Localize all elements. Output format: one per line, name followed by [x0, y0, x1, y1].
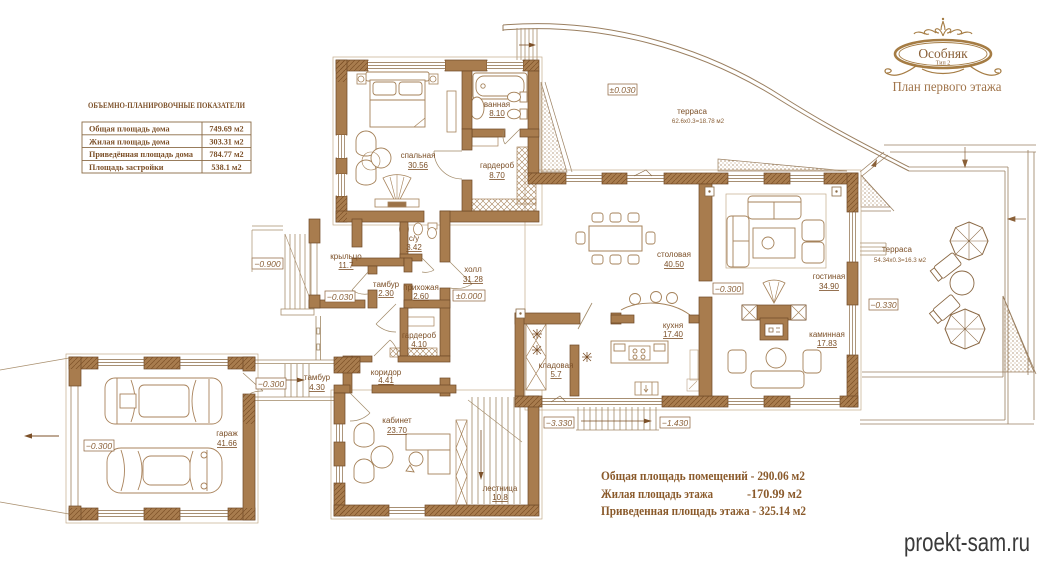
svg-text:4.10: 4.10 — [411, 340, 427, 349]
svg-text:лестница: лестница — [483, 484, 518, 493]
svg-text:784.77 м2: 784.77 м2 — [209, 150, 243, 159]
svg-text:тамбур: тамбур — [373, 280, 400, 289]
svg-text:−0.330: −0.330 — [870, 300, 897, 310]
svg-text:Приведенная площадь этажа - 32: Приведенная площадь этажа - 325.14 м2 — [601, 504, 806, 518]
svg-text:303.31 м2: 303.31 м2 — [209, 137, 243, 146]
svg-text:3.42: 3.42 — [406, 243, 422, 252]
svg-text:с/у: с/у — [409, 234, 419, 243]
svg-text:ванная: ванная — [484, 100, 510, 109]
svg-text:гостиная: гостиная — [813, 272, 846, 281]
svg-text:30.56: 30.56 — [408, 161, 429, 170]
svg-text:31.28: 31.28 — [463, 275, 484, 284]
svg-text:гардероб: гардероб — [480, 161, 514, 170]
svg-text:40.50: 40.50 — [664, 260, 685, 269]
svg-text:11.7: 11.7 — [339, 261, 355, 270]
svg-text:62.6х0.3=18.78 м2: 62.6х0.3=18.78 м2 — [672, 118, 725, 125]
svg-text:каминная: каминная — [809, 330, 845, 339]
svg-text:17.40: 17.40 — [663, 330, 684, 339]
svg-text:План первого этажа: План первого этажа — [893, 79, 1002, 94]
svg-text:Тип 2: Тип 2 — [936, 61, 950, 67]
svg-text:Общая площадь дома: Общая площадь дома — [89, 125, 170, 134]
svg-text:2.60: 2.60 — [413, 292, 429, 301]
svg-text:холл: холл — [464, 265, 482, 274]
svg-text:41.66: 41.66 — [217, 439, 238, 448]
svg-text:17.83: 17.83 — [817, 339, 838, 348]
svg-text:−0.300: −0.300 — [715, 284, 742, 294]
svg-text:гардероб: гардероб — [402, 331, 436, 340]
svg-text:терраса: терраса — [882, 245, 912, 254]
svg-text:−0.030: −0.030 — [327, 292, 354, 302]
svg-text:5.7: 5.7 — [550, 370, 562, 379]
svg-text:спальная: спальная — [401, 151, 436, 160]
svg-text:прихожая: прихожая — [403, 283, 439, 292]
svg-text:10.8: 10.8 — [492, 493, 508, 502]
svg-text:терраса: терраса — [677, 107, 707, 116]
svg-text:±0.030: ±0.030 — [610, 85, 636, 95]
svg-text:−0.300: −0.300 — [258, 379, 285, 389]
svg-text:2.30: 2.30 — [378, 289, 394, 298]
svg-text:−1.430: −1.430 — [662, 418, 689, 428]
svg-text:Жилая площадь этажа: Жилая площадь этажа — [601, 487, 714, 501]
svg-text:Приведённая площадь дома: Приведённая площадь дома — [89, 150, 193, 159]
svg-text:кабинет: кабинет — [382, 416, 412, 425]
svg-text:4.41: 4.41 — [378, 376, 394, 385]
svg-text:-170.99 м2: -170.99 м2 — [747, 487, 802, 501]
svg-text:8.10: 8.10 — [489, 109, 505, 118]
svg-text:гараж: гараж — [216, 429, 238, 438]
svg-text:34.90: 34.90 — [819, 282, 840, 291]
svg-text:538.1 м2: 538.1 м2 — [211, 163, 241, 172]
svg-text:749.69 м2: 749.69 м2 — [209, 125, 243, 134]
svg-text:−0.900: −0.900 — [254, 259, 281, 269]
svg-text:столовая: столовая — [657, 250, 691, 259]
svg-text:proekt-sam.ru: proekt-sam.ru — [904, 527, 1030, 557]
svg-text:Особняк: Особняк — [918, 46, 968, 61]
svg-text:крыльцо: крыльцо — [330, 252, 362, 261]
svg-text:−3.330: −3.330 — [546, 418, 573, 428]
svg-text:кухня: кухня — [663, 321, 683, 330]
svg-text:Площадь застройки: Площадь застройки — [89, 163, 164, 172]
svg-text:тамбур: тамбур — [304, 373, 331, 382]
svg-text:±0.000: ±0.000 — [456, 291, 482, 301]
svg-text:54.34х0.3=16.3 м2: 54.34х0.3=16.3 м2 — [874, 257, 927, 264]
svg-text:23.70: 23.70 — [387, 426, 408, 435]
svg-text:Общая площадь помещений - 290.: Общая площадь помещений - 290.06 м2 — [601, 469, 805, 483]
svg-text:кладовая: кладовая — [539, 361, 574, 370]
svg-text:−0.300: −0.300 — [86, 441, 113, 451]
svg-text:ОБЪЕМНО-ПЛАНИРОВОЧНЫЕ ПОКАЗАТЕ: ОБЪЕМНО-ПЛАНИРОВОЧНЫЕ ПОКАЗАТЕЛИ — [88, 100, 245, 110]
svg-text:4.30: 4.30 — [309, 383, 325, 392]
svg-text:8.70: 8.70 — [489, 171, 505, 180]
svg-text:Жилая площадь дома: Жилая площадь дома — [89, 137, 170, 146]
